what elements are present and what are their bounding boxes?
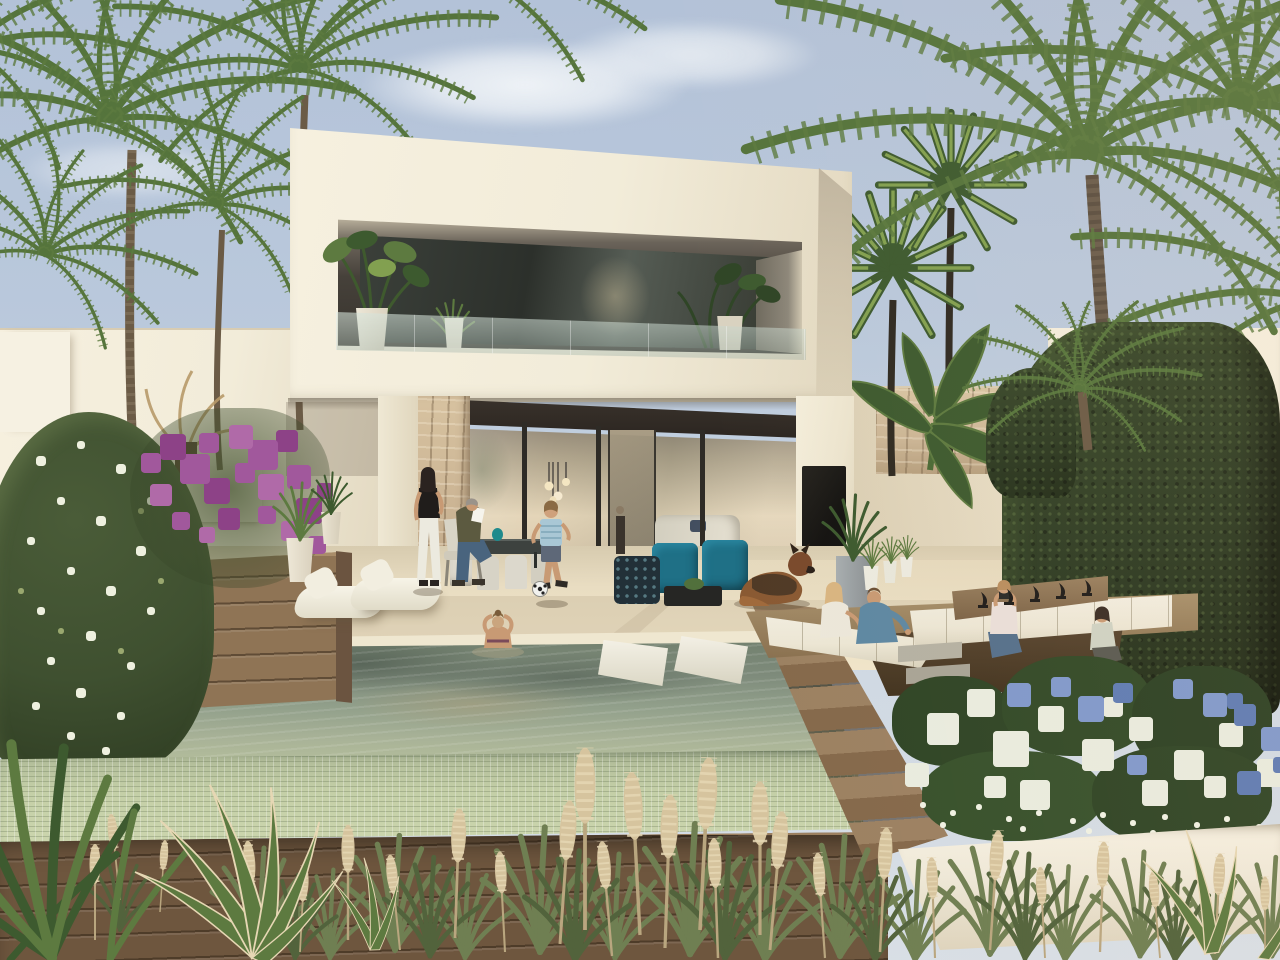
villa-render-scene: [0, 0, 1280, 960]
yucca-agave-foreground: [0, 0, 1280, 960]
